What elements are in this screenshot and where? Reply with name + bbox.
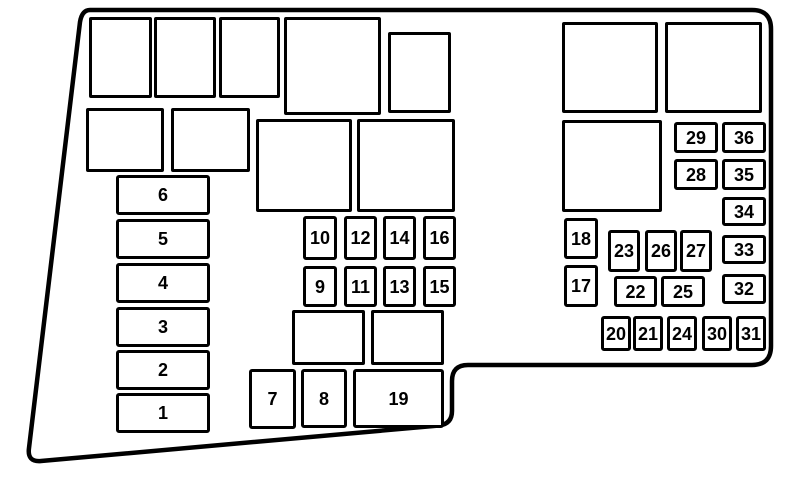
fuse-10: 10 xyxy=(303,216,337,260)
fuse-33: 33 xyxy=(722,235,766,264)
fuse-13: 13 xyxy=(383,266,416,307)
fuse-21: 21 xyxy=(633,316,663,351)
relay-box-a xyxy=(89,17,152,98)
fuse-15: 15 xyxy=(423,266,456,307)
relay-box-e xyxy=(388,32,451,113)
fuse-35: 35 xyxy=(722,159,766,190)
fuse-36: 36 xyxy=(722,122,766,153)
fuse-box-diagram: 6 5 4 3 2 1 7 8 19 10 12 14 16 9 11 13 1… xyxy=(0,0,802,481)
relay-box-d xyxy=(284,17,381,115)
relay-box-b xyxy=(154,17,216,98)
fuse-23: 23 xyxy=(608,230,640,272)
fuse-12: 12 xyxy=(344,216,377,260)
relay-box-k xyxy=(665,22,762,113)
fuse-26: 26 xyxy=(645,230,677,272)
fuse-11: 11 xyxy=(344,266,377,307)
fuse-32: 32 xyxy=(722,274,766,304)
fuse-29: 29 xyxy=(674,122,718,153)
relay-box-f xyxy=(86,108,164,172)
fuse-6: 6 xyxy=(116,175,210,215)
fuse-18: 18 xyxy=(564,218,598,259)
fuse-5: 5 xyxy=(116,219,210,259)
fuse-16: 16 xyxy=(423,216,456,260)
relay-box-h xyxy=(256,119,352,212)
fuse-14: 14 xyxy=(383,216,416,260)
relay-box-m xyxy=(292,310,365,365)
fuse-25: 25 xyxy=(661,276,705,307)
relay-box-i xyxy=(357,119,455,212)
fuse-19: 19 xyxy=(353,369,444,428)
fuse-17: 17 xyxy=(564,265,598,307)
relay-box-n xyxy=(371,310,444,365)
relay-box-l xyxy=(562,120,662,212)
fuse-27: 27 xyxy=(680,230,712,272)
fuse-34: 34 xyxy=(722,197,766,226)
fuse-22: 22 xyxy=(614,276,657,307)
fuse-20: 20 xyxy=(601,316,631,351)
fuse-24: 24 xyxy=(667,316,697,351)
fuse-4: 4 xyxy=(116,263,210,303)
fuse-7: 7 xyxy=(249,369,296,429)
relay-box-g xyxy=(171,108,250,172)
fuse-9: 9 xyxy=(303,266,337,307)
relay-box-j xyxy=(562,22,658,113)
fuse-3: 3 xyxy=(116,307,210,347)
relay-box-c xyxy=(219,17,280,98)
fuse-2: 2 xyxy=(116,350,210,390)
fuse-8: 8 xyxy=(301,369,347,428)
fuse-30: 30 xyxy=(702,316,732,351)
fuse-1: 1 xyxy=(116,393,210,433)
fuse-31: 31 xyxy=(736,316,766,351)
fuse-28: 28 xyxy=(674,159,718,190)
